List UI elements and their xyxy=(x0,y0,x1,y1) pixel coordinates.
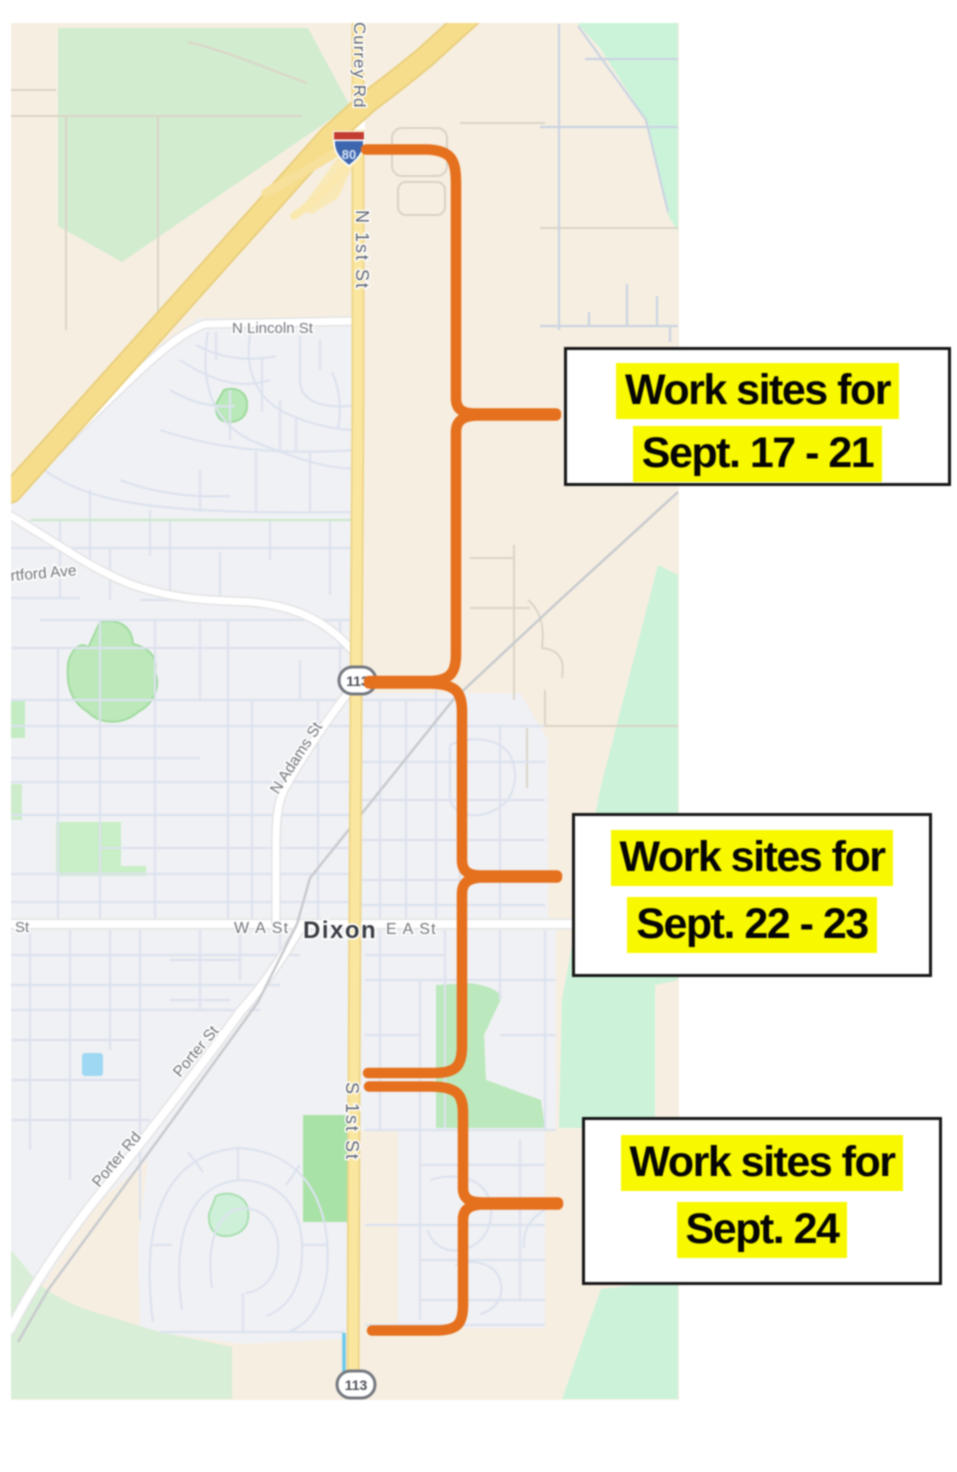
svg-text:N 1st St: N 1st St xyxy=(352,210,372,290)
svg-text:Currey Rd: Currey Rd xyxy=(350,22,369,108)
svg-text:S 1st St: S 1st St xyxy=(342,1082,362,1161)
svg-text:80: 80 xyxy=(342,147,356,162)
svg-text:W A St: W A St xyxy=(234,920,289,937)
svg-text:113: 113 xyxy=(345,1377,368,1393)
svg-text:Dixon: Dixon xyxy=(303,917,377,944)
svg-text:E A St: E A St xyxy=(386,921,437,938)
svg-text:St: St xyxy=(15,919,30,936)
svg-text:N Lincoln St: N Lincoln St xyxy=(232,320,314,337)
